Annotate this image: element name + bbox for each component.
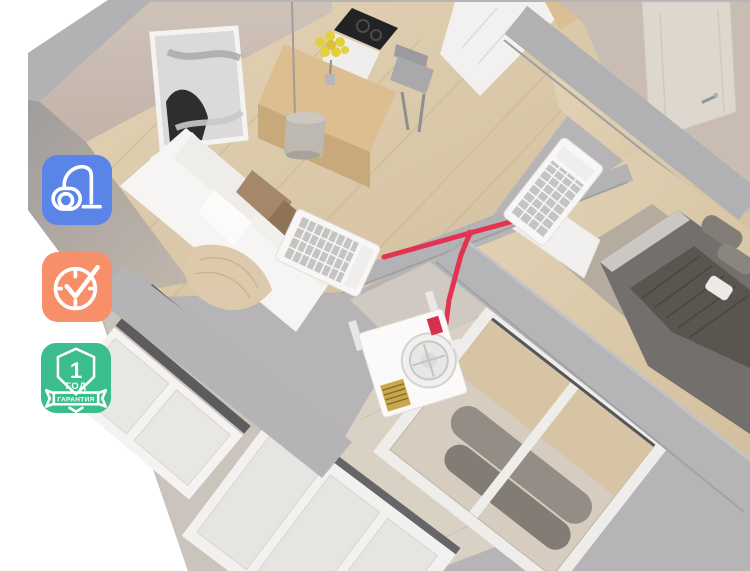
feature-badge-fast-service bbox=[42, 252, 112, 322]
warranty-ribbon-text: ГАРАНТИЯ bbox=[57, 397, 94, 404]
badge-background-orange bbox=[42, 252, 112, 322]
promo-render-canvas: 1 ГОД ГАРАНТИЯ bbox=[0, 0, 750, 571]
warranty-unit: ГОД bbox=[66, 381, 87, 391]
apartment-render bbox=[0, 0, 750, 571]
feature-badge-clean-install bbox=[42, 155, 112, 225]
warranty-value: 1 bbox=[70, 358, 82, 383]
warranty-badge: 1 ГОД ГАРАНТИЯ bbox=[41, 343, 111, 413]
wall-art bbox=[152, 28, 246, 148]
